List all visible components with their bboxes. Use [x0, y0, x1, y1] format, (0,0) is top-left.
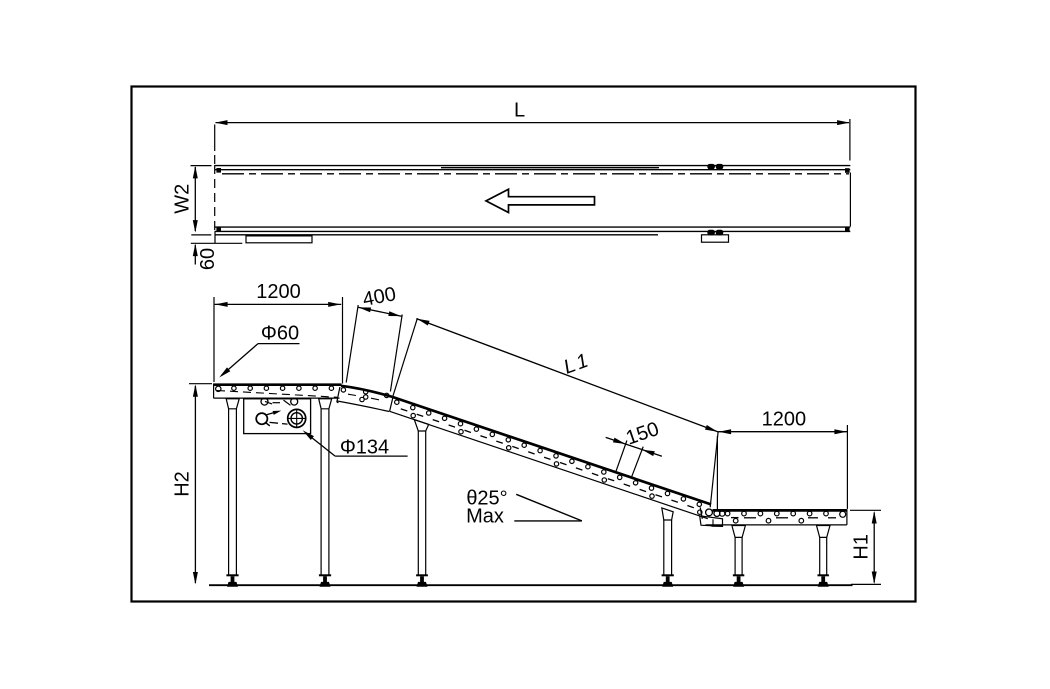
svg-text:1200: 1200 — [256, 281, 301, 303]
svg-text:W2: W2 — [171, 184, 193, 214]
svg-text:Φ134: Φ134 — [340, 436, 389, 458]
svg-text:Φ60: Φ60 — [261, 323, 299, 345]
svg-text:H1: H1 — [850, 534, 872, 560]
svg-text:60: 60 — [197, 248, 219, 270]
svg-text:H2: H2 — [172, 471, 194, 497]
svg-text:1200: 1200 — [762, 408, 807, 430]
svg-text:Max: Max — [466, 506, 504, 528]
svg-text:L: L — [514, 100, 525, 122]
